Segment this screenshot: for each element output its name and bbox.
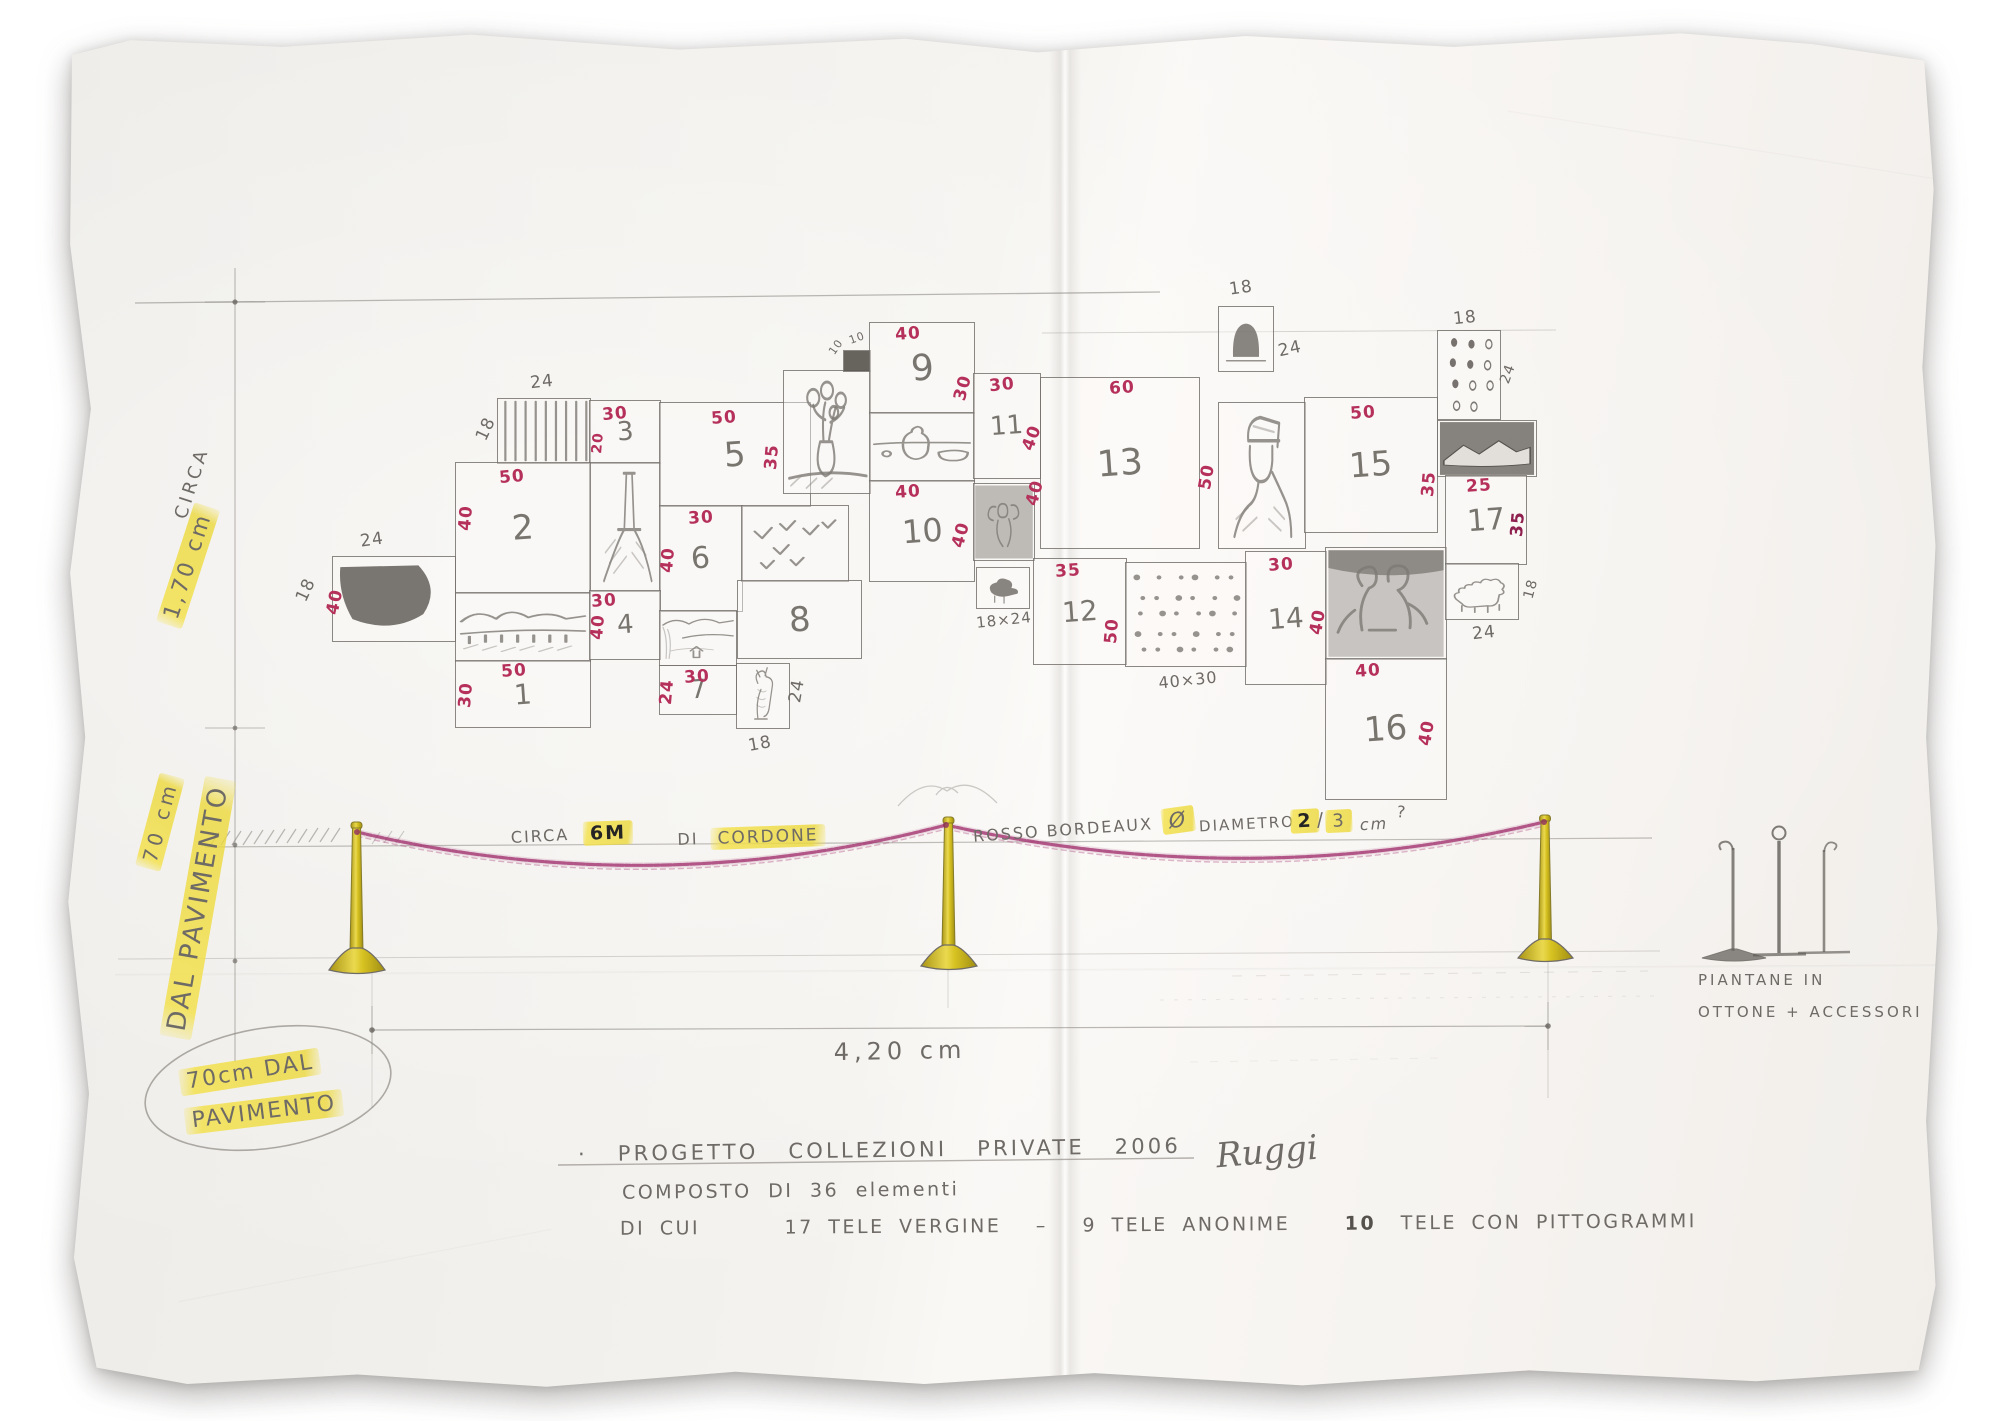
rope-di: DI	[677, 829, 699, 849]
dimension-label: 40	[894, 481, 921, 503]
dimension-label: 50	[1349, 402, 1376, 424]
dimension-label: 20	[589, 432, 607, 455]
dimension-label: 50	[500, 660, 527, 682]
dimension-label: 40	[1306, 608, 1330, 637]
dimension-label: 10	[826, 337, 846, 358]
footer-line3-vergine: 17 TELE VERGINE	[785, 1215, 1002, 1239]
footer-line3-dicui: DI CUI	[620, 1217, 700, 1240]
dimension-label: 40	[1022, 478, 1048, 508]
span-dimension-label: 4,20 cm	[833, 1036, 966, 1066]
dimension-label: 30	[687, 507, 714, 529]
dimension-label: 30	[988, 374, 1016, 397]
dimension-label: 24	[1276, 337, 1303, 361]
dimension-label: 40	[1354, 660, 1381, 682]
footer-line2: COMPOSTO DI 36 elementi	[622, 1178, 960, 1204]
dimension-label: 60	[1108, 377, 1135, 399]
dimension-label: 50	[1195, 463, 1219, 492]
dimension-label: 35	[761, 443, 783, 470]
rope-cordone-label: CORDONE	[710, 824, 826, 850]
stand-note-line2: OTTONE + ACCESSORI	[1698, 1003, 1923, 1021]
dimension-label: 40	[587, 613, 609, 640]
dimension-label: 18	[747, 732, 774, 756]
dimension-label: 24	[656, 678, 678, 705]
dimension-label: 30	[455, 681, 477, 708]
rope-length: 6M	[583, 820, 634, 846]
dimension-label: 18	[1452, 307, 1478, 329]
rope-unit: cm	[1359, 814, 1388, 834]
dimension-label: 35	[1507, 510, 1529, 537]
dimension-label: 35	[1418, 470, 1440, 497]
dimension-label: 30	[590, 590, 617, 612]
dimension-label: 40×30	[1158, 667, 1219, 692]
dimension-label: 24	[529, 371, 555, 393]
dimension-label: 40	[455, 504, 477, 531]
dimension-label: 50	[710, 407, 737, 429]
dimension-label: 25	[1465, 475, 1492, 497]
rope-question: ?	[1396, 802, 1408, 822]
footer-line3-pittogrammi: TELE CON PITTOGRAMMI	[1401, 1210, 1697, 1234]
rope-diameter-symbol: Ø	[1160, 805, 1196, 835]
dimension-label: 18	[472, 414, 500, 444]
dimension-label: 24	[1497, 362, 1519, 386]
dimension-label: 30	[601, 403, 628, 425]
dimension-label: 50	[498, 466, 525, 488]
dimension-label: 35	[1054, 560, 1081, 582]
footer-line3-count: 10	[1345, 1212, 1377, 1234]
photo-of-sketch: 3256147891011131512141716 24184050402418…	[0, 0, 2000, 1421]
dimension-label: 18	[1521, 577, 1542, 600]
footer-line3-dash: –	[1036, 1215, 1048, 1237]
dimension-label: 24	[359, 528, 385, 551]
dimension-label: 18	[292, 575, 320, 605]
title-bullet: ·	[578, 1142, 588, 1166]
dimension-label: 40	[1415, 719, 1439, 748]
dimension-label: 30	[1267, 554, 1294, 576]
dimension-label: 30	[683, 666, 710, 688]
rope-circa: CIRCA	[510, 825, 569, 847]
dimension-label: 40	[894, 323, 921, 345]
dimension-label: 40	[323, 587, 348, 616]
dimension-label: 40	[1018, 423, 1046, 454]
dimension-label: 24	[1471, 622, 1497, 644]
stand-note-line1: PIANTANE IN	[1698, 971, 1825, 989]
dimension-label: 18×24	[975, 608, 1032, 632]
rope-d2: 3	[1325, 809, 1354, 833]
dimension-label: 18	[1228, 276, 1254, 299]
dimension-label: 50	[1101, 617, 1123, 644]
dim-layer: 2418405040241830205030405030304030242418…	[0, 0, 2000, 1421]
dimension-label: 30	[950, 373, 976, 403]
footer-line3-anonime: 9 TELE ANONIME	[1082, 1213, 1290, 1236]
dimension-label: 40	[948, 520, 974, 550]
dimension-label: 24	[785, 678, 809, 705]
dimension-label: 40	[657, 546, 679, 573]
dimension-label: 10	[847, 329, 866, 347]
